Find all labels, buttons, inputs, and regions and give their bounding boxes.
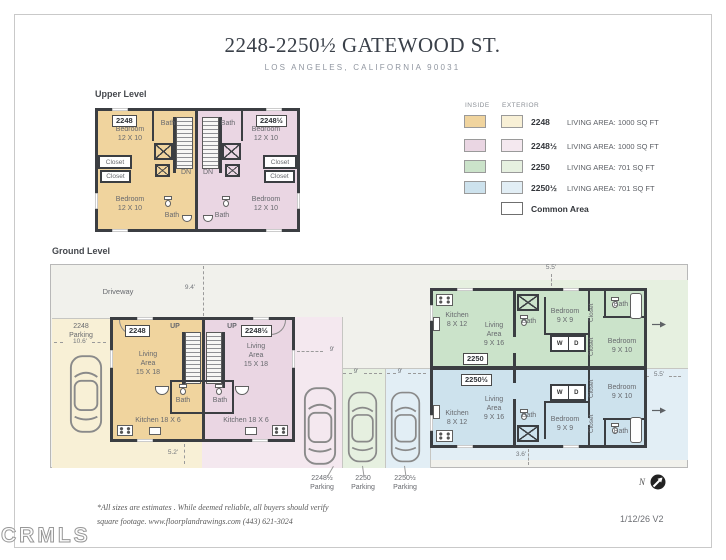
dryer-label: D [569, 337, 585, 350]
dim-unitB-top: 5.5' [542, 264, 560, 271]
window [563, 288, 579, 291]
closet-x-symbol [155, 164, 170, 177]
toilet-icon [164, 196, 172, 208]
car-icon-2248 [69, 354, 103, 434]
upper-level-plan: Closet Closet Closet Closet 2248 2248½ B… [95, 108, 300, 232]
swatch-exterior-2248h [501, 139, 523, 152]
dim-line [54, 342, 63, 343]
room-label-closet: Closet [588, 371, 596, 407]
party-wall [433, 366, 644, 370]
upper-level-label: Upper Level [95, 89, 147, 99]
legend: INSIDE EXTERIOR 2248 LIVING AREA: 1000 S… [464, 98, 708, 220]
window [430, 305, 433, 321]
swatch-inside-2248h [464, 139, 486, 152]
room-label-bedroom: Bedroom 9 X 10 [601, 337, 643, 355]
swatch-inside-2250h [464, 181, 486, 194]
unit-badge-2248: 2248 [125, 325, 150, 337]
dim-stall-2250h: 9' [393, 368, 407, 375]
closet-left-1: Closet [98, 155, 132, 169]
window [457, 288, 473, 291]
window [297, 193, 300, 209]
window [292, 350, 295, 368]
legend-desc-2248h: LIVING AREA: 1000 SQ FT [567, 142, 659, 151]
washer-label: W [552, 337, 569, 350]
room-label-closet: Closet [588, 330, 596, 364]
room-label-bedroom: Bedroom 12 X 10 [236, 195, 296, 213]
room-label-bath: Bath [609, 300, 633, 309]
legend-desc-2250h: LIVING AREA: 701 SQ FT [567, 184, 655, 193]
room-label-closet: Closet [588, 406, 596, 442]
legend-exterior-header: EXTERIOR [502, 102, 539, 109]
closet-x-symbol [222, 143, 241, 160]
dim-line [297, 351, 323, 352]
disclaimer-line-2: square footage. www.floorplandrawings.co… [97, 517, 293, 526]
room-label-living: Living Area 15 X 18 [119, 350, 177, 377]
north-label: N [639, 477, 645, 487]
legend-unit-2248: 2248 [531, 117, 550, 127]
room-label-bath: Bath [517, 317, 541, 326]
kitchen-sink-icon [245, 427, 257, 435]
legend-unit-2248h: 2248½ [531, 141, 557, 151]
room-label-bath: Bath [171, 396, 195, 405]
room-label-kitchen: Kitchen 18 X 6 [123, 416, 193, 425]
swatch-common-area [501, 202, 523, 215]
room-label-kitchen: Kitchen 18 X 6 [211, 416, 281, 425]
stairs-up-label: UP [224, 322, 240, 331]
dim-unitB-bottom: 3.6' [513, 451, 529, 458]
exterior-zone-2248 [110, 442, 202, 468]
legend-desc-2248: LIVING AREA: 1000 SQ FT [567, 118, 659, 127]
room-label-kitchen: Kitchen 8 X 12 [435, 409, 479, 427]
stairs-up-left [185, 332, 201, 384]
dim-line [203, 266, 204, 316]
toilet-icon [222, 196, 230, 208]
driveway-label: Driveway [96, 287, 140, 297]
legend-unit-common: Common Area [531, 204, 589, 214]
party-wall [195, 111, 198, 229]
window [266, 108, 282, 111]
parking-label-2250: 2250 Parking [341, 474, 385, 492]
room-label-bath: Bath [208, 396, 232, 405]
closet-right-1: Closet [263, 155, 297, 169]
stove-icon [117, 425, 133, 436]
swatch-inside-2248 [464, 115, 486, 128]
room-label-bedroom: Bedroom 9 X 9 [541, 307, 589, 325]
entry-arrow-icon [652, 320, 666, 329]
crmls-watermark: CRMLS [1, 524, 91, 548]
window [430, 415, 433, 431]
swatch-exterior-2248 [501, 115, 523, 128]
stairs-dn-label: DN [178, 168, 194, 177]
car-icon-2250 [347, 388, 378, 466]
dim-line [184, 444, 185, 464]
parking-label-2250h: 2250½ Parking [381, 474, 429, 492]
legend-unit-2250h: 2250½ [531, 183, 557, 193]
closet-x-symbol [517, 425, 539, 442]
legend-desc-2250: LIVING AREA: 701 SQ FT [567, 163, 655, 172]
zone-line [430, 448, 431, 468]
car-icon-2250h [390, 388, 421, 466]
unit-badge-2248h: 2248½ [241, 325, 272, 337]
dim-line [528, 449, 529, 465]
room-label-bath: Bath [216, 119, 240, 128]
washer-dryer: WD [550, 384, 586, 401]
dim-stall-2248h: 9' [324, 346, 340, 353]
building-2250-2250h: WD WD 2250 2250½ Kitchen 8 X 12 Living A… [430, 288, 647, 448]
dim-line [408, 373, 426, 374]
washer-dryer: WD [550, 335, 586, 352]
zone-line [385, 368, 386, 468]
north-arrow-icon [649, 473, 667, 491]
interior-wall [604, 420, 606, 445]
interior-wall [544, 401, 590, 403]
closet-x-symbol [225, 164, 240, 177]
window [112, 229, 128, 232]
window [95, 193, 98, 209]
unit-badge-2250h: 2250½ [461, 374, 492, 386]
version-stamp: 1/12/26 V2 [620, 514, 664, 524]
kitchen-sink-icon [149, 427, 161, 435]
unit-badge-2248h: 2248½ [256, 115, 287, 127]
dryer-label: D [569, 386, 585, 399]
window [137, 317, 153, 320]
closet-right-2: Closet [264, 170, 295, 183]
zone-line [52, 318, 110, 319]
swatch-exterior-2250 [501, 160, 523, 173]
stairs-dn-label: DN [200, 168, 216, 177]
stairs-up-right [206, 332, 222, 384]
stove-icon [436, 430, 453, 442]
closet-x-symbol [154, 143, 173, 160]
parking-label-2248h: 2248½ Parking [298, 474, 346, 492]
room-label-bath: Bath [156, 119, 180, 128]
zone-line [342, 317, 343, 468]
unit-badge-2248: 2248 [112, 115, 137, 127]
room-label-closet: Closet [588, 294, 596, 332]
toilet-icon [215, 384, 223, 396]
room-label-bedroom: Bedroom 12 X 10 [100, 195, 160, 213]
swatch-exterior-2250h [501, 181, 523, 194]
closet-x-symbol [517, 294, 539, 311]
room-label-bedroom: Bedroom 9 X 9 [541, 415, 589, 433]
ground-level-label: Ground Level [52, 246, 110, 256]
unit-badge-2250: 2250 [463, 353, 488, 365]
window [266, 229, 282, 232]
window [563, 445, 579, 448]
interior-wall [604, 291, 606, 316]
dim-unitB-right: 5.5' [650, 371, 668, 378]
room-label-bedroom: Bedroom 12 X 10 [100, 125, 160, 143]
dim-drive-width: 9.4' [181, 284, 199, 291]
stove-icon [436, 294, 453, 306]
page-title: 2248-2250½ GATEWOOD ST. [14, 33, 711, 58]
dim-line [364, 373, 382, 374]
dim-line [551, 274, 552, 286]
room-label-bath: Bath [210, 211, 234, 220]
building-2248-2248h: UP UP 2248 2248½ Bath Bath Living Area 1… [110, 317, 295, 442]
interior-wall [513, 370, 516, 383]
dim-line [669, 376, 681, 377]
room-label-living: Living Area 9 X 16 [471, 321, 517, 348]
dim-unitA-gap: 5.2' [165, 449, 181, 456]
window [253, 317, 269, 320]
legend-unit-2250: 2250 [531, 162, 550, 172]
entry-arrow-icon [652, 406, 666, 415]
legend-inside-header: INSIDE [465, 102, 490, 109]
dim-stall-2250: 9' [349, 368, 363, 375]
toilet-icon [179, 384, 187, 396]
swatch-inside-2250 [464, 160, 486, 173]
window [112, 108, 128, 111]
room-label-living: Living Area 15 X 18 [227, 342, 285, 369]
interior-wall [513, 353, 516, 366]
disclaimer-line-1: *All sizes are estimates . While deemed … [97, 503, 329, 512]
washer-label: W [552, 386, 569, 399]
room-label-bath: Bath [517, 411, 541, 420]
dim-line [92, 342, 106, 343]
stove-icon [272, 425, 288, 436]
exterior-zone-2248h-under [202, 442, 295, 468]
window [252, 439, 268, 442]
window [457, 445, 473, 448]
stairs-up-label: UP [167, 322, 183, 331]
zone-line [647, 368, 688, 369]
room-label-bedroom: Bedroom 9 X 10 [601, 383, 643, 401]
window [137, 439, 153, 442]
room-label-bath: Bath [609, 427, 633, 436]
closet-left-2: Closet [100, 170, 131, 183]
window [110, 350, 113, 368]
car-icon-2248h [303, 386, 337, 466]
floor-plan-sheet: 2248-2250½ GATEWOOD ST. LOS ANGELES, CAL… [0, 0, 726, 560]
room-label-bedroom: Bedroom 12 X 10 [236, 125, 296, 143]
page-subtitle: LOS ANGELES, CALIFORNIA 90031 [14, 63, 711, 72]
room-label-bath: Bath [160, 211, 184, 220]
